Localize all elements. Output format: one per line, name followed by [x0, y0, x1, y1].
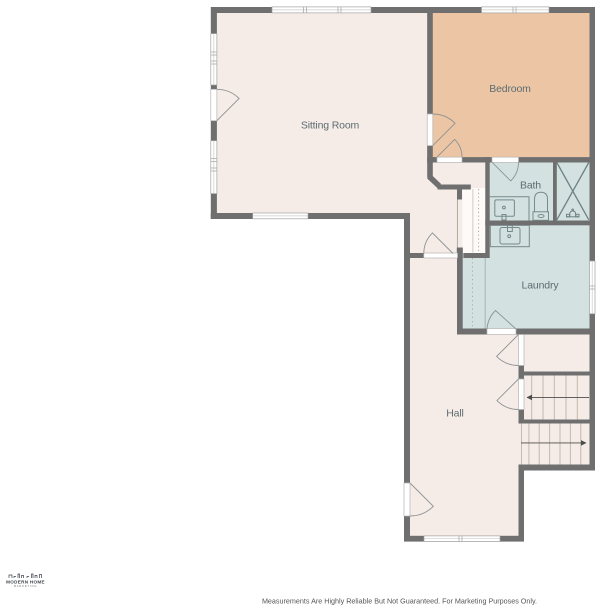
- svg-text:Measurements Are Highly Reliab: Measurements Are Highly Reliable But Not…: [262, 597, 537, 606]
- svg-text:Sitting Room: Sitting Room: [301, 120, 360, 132]
- svg-text:MARKETING: MARKETING: [14, 584, 38, 588]
- svg-text:Hall: Hall: [446, 408, 464, 420]
- svg-text:Bedroom: Bedroom: [489, 83, 531, 95]
- svg-text:Laundry: Laundry: [522, 280, 560, 292]
- svg-text:Bath: Bath: [520, 180, 541, 192]
